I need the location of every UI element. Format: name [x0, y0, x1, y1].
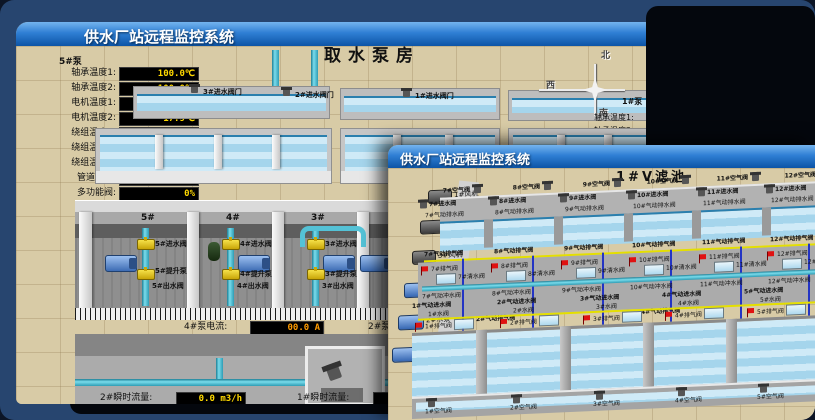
exhaust-flag-icon[interactable] [422, 266, 428, 271]
intake-valve-icon[interactable] [191, 84, 198, 93]
intake-valve-icon[interactable] [283, 87, 290, 96]
cell-pipe-line [602, 253, 604, 325]
intake-valve-label: 3#进水阀门 [203, 89, 242, 96]
exhaust-flag-icon[interactable] [768, 251, 774, 256]
hall-column [187, 212, 199, 308]
air-valve-label: 3#空气阀 [593, 401, 620, 408]
bay-inlet-label: 3#进水阀 [325, 241, 357, 248]
intake-valve-label: 1#进水阀门 [415, 93, 454, 100]
exhaust-flag-icon[interactable] [501, 319, 507, 324]
bay-inlet-label: 4#进水阀 [240, 241, 272, 248]
clean-valve-label: 12#清水阀 [804, 258, 815, 265]
exhaust-valve-label: 2#排气阀 [510, 320, 537, 327]
bay-outlet-valve-icon[interactable] [222, 269, 240, 280]
bay-inlet-valve-icon[interactable] [137, 239, 155, 250]
air-valve-icon[interactable] [474, 184, 481, 193]
clean-water-tank [644, 264, 664, 276]
cell-separator [762, 207, 771, 235]
bay-outlet-valve-icon[interactable] [137, 269, 155, 280]
panel-row-value: 0% [119, 187, 199, 201]
exhaust-flag-icon[interactable] [748, 308, 754, 313]
vent-valve-label: 11#气动排气阀 [702, 238, 745, 246]
panel-row-label: 电机温度2: [22, 114, 116, 123]
bay-pump-label: 3#提升泵 [325, 271, 357, 278]
settling-basin [95, 128, 332, 184]
screen-canvas: 供水厂站远程监控系统 取水泵房 5#泵 轴承温度1: 100.0℃ 轴承温度2:… [0, 0, 815, 420]
panel-row-label: 轴承温度2: [22, 84, 116, 93]
clean-valve-label: 8#清水阀 [528, 271, 555, 278]
air-valve-icon[interactable] [544, 181, 551, 190]
compass-north-label: 北 [601, 52, 610, 61]
air-valve-icon[interactable] [614, 178, 621, 187]
inlet-valve-icon[interactable] [628, 190, 635, 199]
inlet-valve-label: 9#进水阀 [569, 195, 596, 202]
clean-water-tank [704, 307, 724, 319]
air-valve-icon[interactable] [678, 387, 685, 396]
inlet-valve-label: 7#进水阀 [429, 201, 456, 208]
exhaust-flag-icon[interactable] [630, 257, 636, 262]
machine-valve-icon[interactable] [325, 362, 342, 382]
air-valve-label: 5#空气阀 [757, 394, 784, 401]
air-valve-label: 1#空气阀 [425, 408, 452, 415]
bay-outlet-label: 3#出水阀 [322, 283, 354, 290]
clean-water-tank [539, 315, 559, 327]
intake-valve-icon[interactable] [403, 88, 410, 97]
pump1-panel-title: 1#泵 [622, 98, 642, 106]
compass-west-label: 西 [546, 82, 555, 91]
air-valve-icon[interactable] [596, 391, 603, 400]
cell-separator [554, 216, 563, 244]
panel-row-label: 电机温度1: [22, 99, 116, 108]
clean-water-tank [782, 258, 802, 270]
exhaust-valve-label: 1#排气阀 [425, 323, 452, 330]
air-valve-icon[interactable] [428, 398, 435, 407]
cell-separator [692, 210, 701, 238]
exhaust-valve-label: 3#排气阀 [593, 316, 620, 323]
air-valve-icon[interactable] [760, 383, 767, 392]
inlet-valve-label: 8#进水阀 [499, 198, 526, 205]
bay-pump-label: 4#提升泵 [240, 271, 272, 278]
air-valve-label: 9#空气阀 [566, 181, 610, 189]
bay-pump-label: 5#提升泵 [155, 268, 187, 275]
cell-pipe-line [532, 256, 534, 328]
pump5-panel-title: 5#泵 [59, 58, 82, 67]
cell-separator [726, 319, 737, 383]
air-valve-icon[interactable] [682, 175, 689, 184]
front-window: 供水厂站远程监控系统 1#V滤池 1#风机 2#风机 3#风机 1#水泵 2#水… [388, 145, 815, 420]
filter-scene: 1#风机 2#风机 3#风机 1#水泵 2#水泵 3#水泵 7#空气阀 8#空气… [388, 157, 815, 420]
clean-water-tank [454, 318, 474, 330]
cell-separator [476, 330, 487, 394]
exhaust-flag-icon[interactable] [666, 312, 672, 317]
clean-water-tank [786, 304, 806, 316]
bay-outlet-valve-icon[interactable] [307, 269, 325, 280]
exhaust-valve-label: 8#排气阀 [501, 263, 528, 270]
back-window-title: 供水厂站远程监控系统 [84, 26, 234, 47]
vent-valve-label: 8#气动排气阀 [494, 248, 533, 256]
exhaust-flag-icon[interactable] [416, 323, 422, 328]
bay-outlet-label: 5#出水阀 [152, 283, 184, 290]
vent-valve-label: 9#气动排气阀 [564, 245, 603, 253]
exhaust-flag-icon[interactable] [562, 260, 568, 265]
bay-number: 5# [141, 214, 155, 223]
exhaust-flag-icon[interactable] [584, 315, 590, 320]
clean-valve-label: 9#清水阀 [598, 268, 625, 275]
current-left-label: 4#泵电流: [184, 323, 227, 332]
exhaust-valve-label: 7#排气阀 [431, 266, 458, 273]
air-valve-icon[interactable] [752, 172, 759, 181]
flow-right-label: 1#瞬时流量: [297, 394, 349, 403]
bay-outlet-label: 4#出水阀 [237, 283, 269, 290]
inlet-valve-icon[interactable] [490, 196, 497, 205]
clean-water-tank [714, 261, 734, 273]
panel-row-label: 多功能阀: [22, 189, 116, 198]
flow-left-label: 2#瞬时流量: [100, 394, 152, 403]
cell-separator [624, 213, 633, 241]
hall-column [79, 212, 92, 308]
exhaust-flag-icon[interactable] [492, 263, 498, 268]
bay-inlet-label: 5#进水阀 [155, 241, 187, 248]
cell-separator [643, 322, 654, 386]
bay-number: 3# [311, 214, 325, 223]
inlet-valve-icon[interactable] [698, 187, 705, 196]
air-valve-label: 10#空气阀 [634, 178, 678, 186]
clean-water-tank [436, 273, 456, 285]
hall-column [272, 212, 284, 308]
air-valve-label: 8#空气阀 [496, 184, 540, 192]
vent-valve-label: 12#气动排气阀 [770, 235, 813, 243]
pump1-panel-row: 轴承温度1: [594, 114, 634, 122]
bay-number: 4# [226, 214, 240, 223]
air-valve-label: 12#空气阀 [772, 172, 815, 180]
exhaust-valve-label: 9#排气阀 [571, 260, 598, 267]
flow-left-value: 0.0 m3/h [176, 392, 246, 404]
bay-pump-icon[interactable] [105, 255, 137, 272]
air-valve-label: 4#空气阀 [675, 397, 702, 404]
exhaust-flag-icon[interactable] [700, 254, 706, 259]
panel-row-value: 100.0℃ [119, 67, 199, 81]
air-valve-icon[interactable] [513, 394, 520, 403]
exhaust-valve-label: 5#排气阀 [757, 309, 784, 316]
clean-water-tank [622, 311, 642, 323]
intake-valve-label: 2#进水阀门 [295, 92, 334, 99]
inlet-valve-icon[interactable] [420, 199, 427, 208]
clean-valve-label: 7#清水阀 [458, 274, 485, 281]
scene-title-intake: 取水泵房 [324, 48, 420, 65]
inlet-valve-icon[interactable] [766, 184, 773, 193]
current-left-value: 00.0 A [250, 321, 324, 335]
front-window-title: 供水厂站远程监控系统 [400, 149, 530, 168]
air-valve-label: 11#空气阀 [704, 175, 748, 183]
air-valve-label: 2#空气阀 [510, 405, 537, 412]
bay-inlet-valve-icon[interactable] [222, 239, 240, 250]
vent-valve-label: 10#气动排气阀 [632, 241, 675, 249]
panel-row-label: 轴承温度1: [22, 69, 116, 78]
bay-green-tank [208, 242, 220, 261]
bay-inlet-valve-icon[interactable] [307, 239, 325, 250]
cell-separator [484, 219, 493, 247]
cell-separator [560, 326, 571, 390]
clean-water-tank [576, 267, 596, 279]
clean-water-tank [506, 270, 526, 282]
exhaust-valve-label: 4#排气阀 [675, 312, 702, 319]
inlet-valve-icon[interactable] [560, 193, 567, 202]
